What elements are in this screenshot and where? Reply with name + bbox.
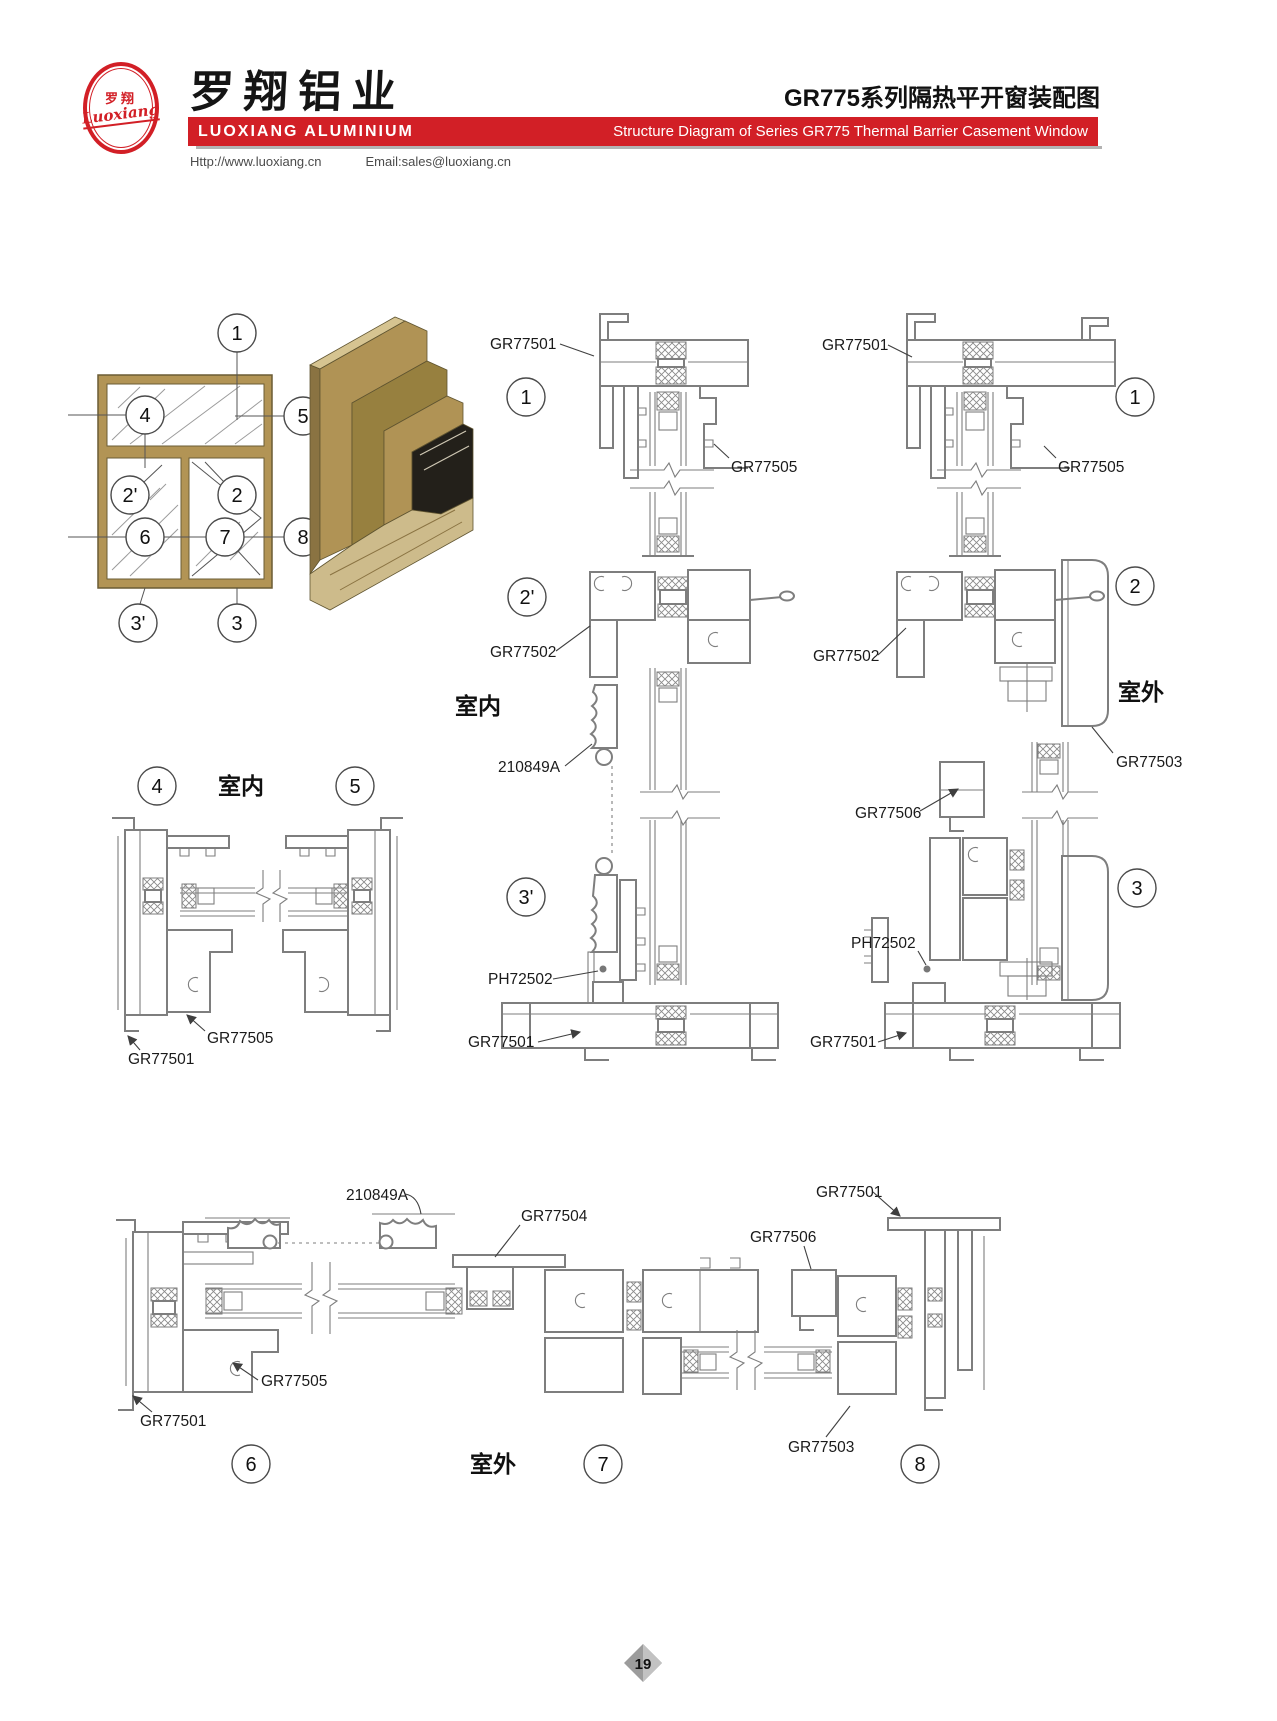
catalog-page: { "header": { "logo_cn": "罗翔", "logo_en"… xyxy=(0,0,1277,1721)
svg-text:1: 1 xyxy=(520,387,531,409)
elevation-callout-2: 2 xyxy=(218,476,256,514)
part-label-transom-right: GR77502 xyxy=(813,648,879,665)
callout-1-right: 1 xyxy=(1116,378,1154,416)
svg-text:2': 2' xyxy=(123,485,138,507)
svg-text:5: 5 xyxy=(297,406,308,428)
callout-6: 6 xyxy=(232,1445,270,1483)
callout-8: 8 xyxy=(901,1445,939,1483)
svg-text:1: 1 xyxy=(231,323,242,345)
elevation-callout-3p: 3' xyxy=(119,604,157,642)
profile-3d-render xyxy=(310,317,473,610)
callout-7: 7 xyxy=(584,1445,622,1483)
svg-text:8: 8 xyxy=(914,1454,925,1476)
section-detail-1-right: GR77501 1 GR77505 xyxy=(822,314,1154,495)
part-label-frame-middle-top: GR77501 xyxy=(490,336,556,353)
part-label-frame-right-bottom: GR77501 xyxy=(810,1034,876,1051)
elevation-callout-4: 4 xyxy=(126,396,164,434)
section-detail-2p-middle: 2' GR77502 室内 210849A xyxy=(455,492,794,855)
elevation-callout-6: 6 xyxy=(126,518,164,556)
section-detail-1-middle: GR77501 1 GR77505 xyxy=(490,314,797,495)
svg-text:7: 7 xyxy=(219,527,230,549)
part-label-outer-frame-right: GR77503 xyxy=(1116,754,1182,771)
window-elevation-schematic: 1 4 5 2' 2 6 7 8 3' 3 xyxy=(68,314,322,642)
svg-text:2: 2 xyxy=(1129,576,1140,598)
svg-text:5: 5 xyxy=(349,776,360,798)
part-label-frame-bottom-right: GR77501 xyxy=(816,1184,882,1201)
part-label-sash-right-top: GR77505 xyxy=(1058,459,1124,476)
technical-diagram: 1 4 5 2' 2 6 7 8 3' 3 xyxy=(0,0,1277,1721)
svg-text:8: 8 xyxy=(297,527,308,549)
elevation-callout-3: 3 xyxy=(218,604,256,642)
room-label-outdoor-right: 室外 xyxy=(1118,679,1164,705)
svg-text:2': 2' xyxy=(520,587,535,609)
part-label-frame-right-top: GR77501 xyxy=(822,337,888,354)
svg-text:3': 3' xyxy=(519,887,534,909)
callout-1-middle: 1 xyxy=(507,378,545,416)
part-label-sash-small-bottom: GR77506 xyxy=(750,1229,816,1246)
section-detail-2-right: 2 GR77502 室外 GR77503 xyxy=(813,492,1182,771)
part-label-sash-small-right: GR77506 xyxy=(855,805,921,822)
part-label-sash-45: GR77505 xyxy=(207,1030,273,1047)
callout-5: 5 xyxy=(336,767,374,805)
page-number-badge: 19 xyxy=(624,1644,662,1682)
elevation-callout-2p: 2' xyxy=(111,476,149,514)
callout-2-right: 2 xyxy=(1116,567,1154,605)
part-label-cover-middle: 210849A xyxy=(498,759,561,776)
callout-2p-middle: 2' xyxy=(508,578,546,616)
part-label-cover-bottom: 210849A xyxy=(346,1187,409,1204)
svg-text:3': 3' xyxy=(131,613,146,635)
svg-text:1: 1 xyxy=(1129,387,1140,409)
part-label-frame-bottom-left: GR77501 xyxy=(140,1413,206,1430)
elevation-callout-7: 7 xyxy=(206,518,244,556)
part-label-mullion-t-bottom: GR77504 xyxy=(521,1208,588,1225)
room-label-indoor-45: 室内 xyxy=(218,773,264,799)
callout-4: 4 xyxy=(138,767,176,805)
section-detail-3-right: GR77506 3 PH72502 GR77501 xyxy=(810,742,1156,1060)
svg-text:3: 3 xyxy=(231,613,242,635)
callout-3p-middle: 3' xyxy=(507,878,545,916)
part-label-sash-middle-top: GR77505 xyxy=(731,459,797,476)
svg-text:7: 7 xyxy=(597,1454,608,1476)
svg-text:2: 2 xyxy=(231,485,242,507)
part-label-bead-right: PH72502 xyxy=(851,935,916,952)
section-detail-3p-middle: 3' PH72502 GR77501 xyxy=(468,668,778,1060)
page-number: 19 xyxy=(635,1656,652,1673)
svg-text:6: 6 xyxy=(245,1454,256,1476)
room-label-indoor-middle: 室内 xyxy=(455,693,501,719)
room-label-outdoor-bottom: 室外 xyxy=(470,1451,516,1477)
part-label-outer-frame-bottom: GR77503 xyxy=(788,1439,854,1456)
part-label-bead-middle: PH72502 xyxy=(488,971,553,988)
part-label-frame-middle-bottom: GR77501 xyxy=(468,1034,534,1051)
svg-text:6: 6 xyxy=(139,527,150,549)
bottom-horizontal-section: 210849A GR77504 GR77501 GR77506 GR77505 … xyxy=(116,1184,1000,1483)
section-detail-4-5: 4 室内 5 GR77505 GR77501 xyxy=(112,767,403,1068)
callout-3-right: 3 xyxy=(1118,869,1156,907)
svg-text:4: 4 xyxy=(151,776,162,798)
elevation-callout-1: 1 xyxy=(218,314,256,352)
svg-text:3: 3 xyxy=(1131,878,1142,900)
svg-text:4: 4 xyxy=(139,405,150,427)
part-label-transom-middle: GR77502 xyxy=(490,644,556,661)
part-label-frame-45: GR77501 xyxy=(128,1051,194,1068)
part-label-sash-bottom: GR77505 xyxy=(261,1373,327,1390)
